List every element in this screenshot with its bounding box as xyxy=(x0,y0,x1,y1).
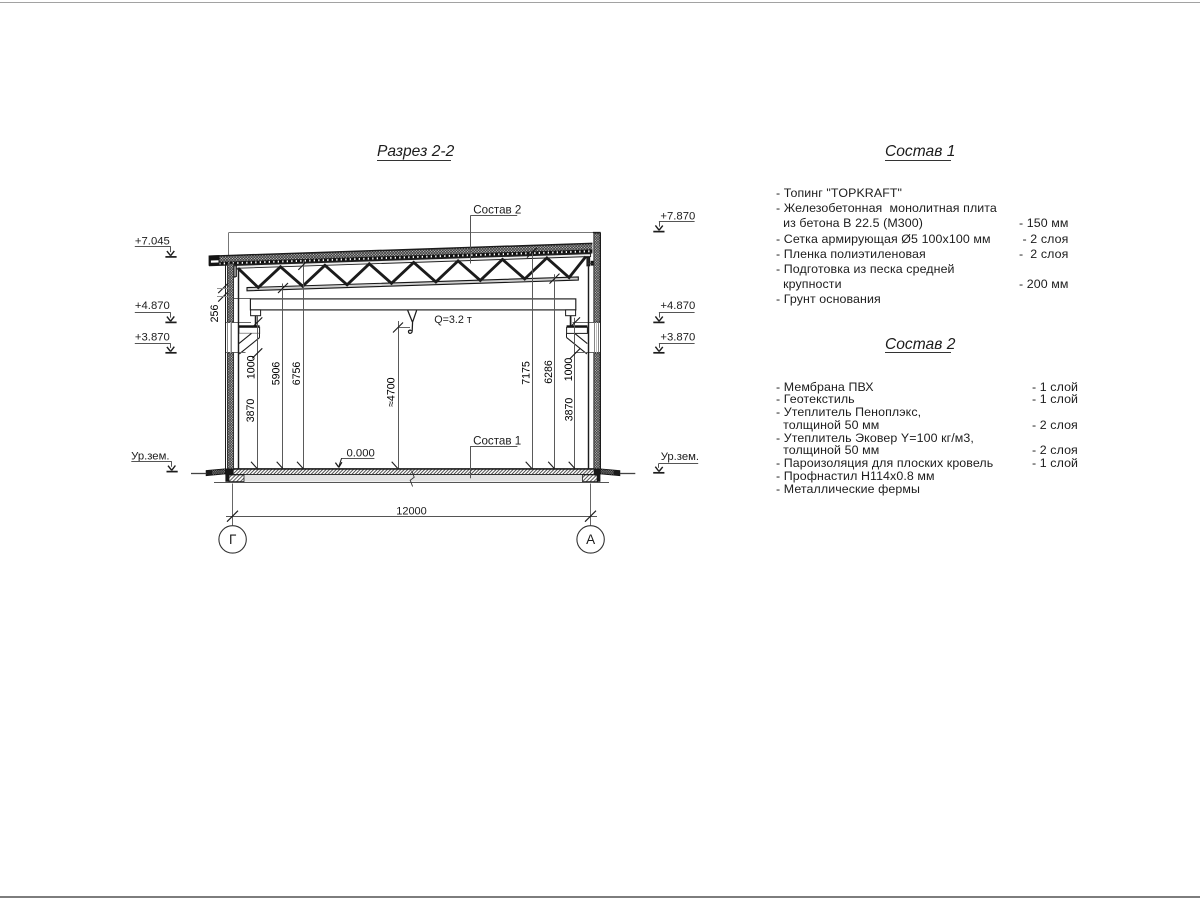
svg-text:3870: 3870 xyxy=(563,398,575,422)
svg-text:5906: 5906 xyxy=(271,362,283,386)
svg-text:256: 256 xyxy=(209,305,221,323)
svg-text:1000: 1000 xyxy=(246,355,258,379)
svg-text:Ур.зем.: Ур.зем. xyxy=(661,451,699,463)
svg-text:1000: 1000 xyxy=(563,358,575,382)
svg-text:3870: 3870 xyxy=(245,399,257,423)
svg-text:Ур.зем.: Ур.зем. xyxy=(131,450,169,462)
svg-text:6756: 6756 xyxy=(291,362,303,386)
svg-text:7175: 7175 xyxy=(521,361,533,385)
svg-text:А: А xyxy=(586,532,595,547)
svg-text:+4.870: +4.870 xyxy=(135,300,170,312)
svg-text:Q=3.2 т: Q=3.2 т xyxy=(434,314,472,326)
svg-text:Состав 1: Состав 1 xyxy=(473,434,521,447)
svg-text:+7.045: +7.045 xyxy=(135,235,170,247)
svg-text:0.000: 0.000 xyxy=(347,448,375,460)
svg-text:Состав 2: Состав 2 xyxy=(473,203,521,216)
svg-text:+7.870: +7.870 xyxy=(660,210,695,222)
svg-text:12000: 12000 xyxy=(396,505,427,517)
svg-text:≈4700: ≈4700 xyxy=(385,377,397,406)
svg-text:+3.870: +3.870 xyxy=(135,331,170,343)
svg-text:+3.870: +3.870 xyxy=(660,331,695,343)
svg-text:Г: Г xyxy=(229,532,237,547)
svg-text:6286: 6286 xyxy=(543,360,555,384)
svg-text:+4.870: +4.870 xyxy=(660,300,695,312)
